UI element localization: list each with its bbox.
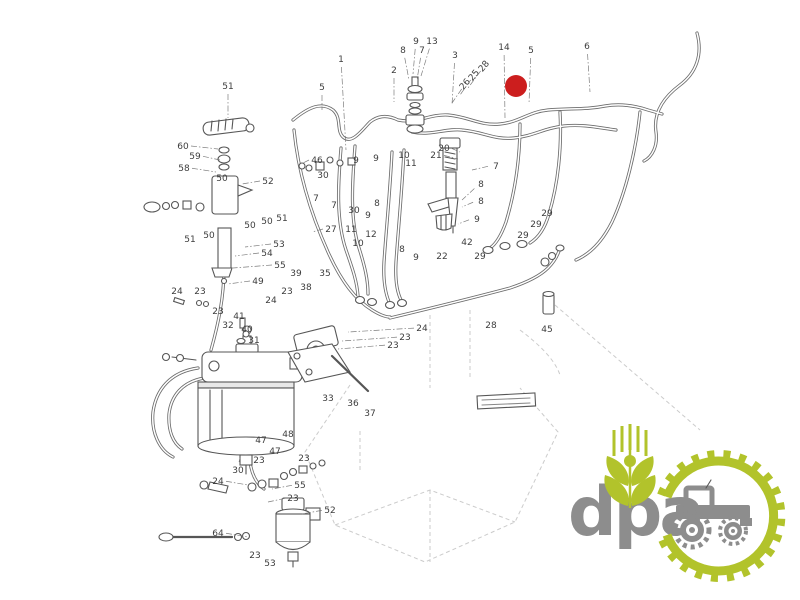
part-label-54: 54 xyxy=(261,249,273,259)
part-label-28: 28 xyxy=(485,321,497,331)
part-label-58: 58 xyxy=(178,164,190,174)
part-label-49: 49 xyxy=(252,277,264,287)
part-label-31: 31 xyxy=(248,336,259,346)
part-label-23: 23 xyxy=(287,494,298,504)
part-label-12: 12 xyxy=(365,230,376,240)
part-label-53: 53 xyxy=(264,559,275,569)
part-label-36: 36 xyxy=(347,399,359,409)
part-label-14: 14 xyxy=(498,43,510,53)
part-label-8: 8 xyxy=(478,197,484,207)
red-dot-marker xyxy=(505,75,527,97)
part-label-11: 11 xyxy=(345,225,356,235)
part-label-21: 21 xyxy=(430,151,441,161)
part-label-46: 46 xyxy=(311,156,323,166)
part-label-9: 9 xyxy=(413,253,419,263)
fuel-filter-assembly xyxy=(163,326,303,474)
part-label-42: 42 xyxy=(461,238,472,248)
part-label-24: 24 xyxy=(171,287,183,297)
part-label-47: 47 xyxy=(269,447,280,457)
part-label-6: 6 xyxy=(584,42,590,52)
part-label-24: 24 xyxy=(265,296,277,306)
part-label-29: 29 xyxy=(530,220,542,230)
part-label-50: 50 xyxy=(203,231,215,241)
part-label-23: 23 xyxy=(212,307,223,317)
part-label-5: 5 xyxy=(528,46,534,56)
part-label-50: 50 xyxy=(261,217,273,227)
part-label-30: 30 xyxy=(232,466,244,476)
part-label-27: 27 xyxy=(325,225,336,235)
part-label-55: 55 xyxy=(274,261,285,271)
part-label-8: 8 xyxy=(374,199,380,209)
part-label-3: 3 xyxy=(452,51,458,61)
part-label-24: 24 xyxy=(416,324,428,334)
parts-diagram: 5151289713326252814566059585052515050505… xyxy=(0,0,800,600)
part-label-30: 30 xyxy=(348,206,360,216)
part-label-8: 8 xyxy=(400,46,406,56)
engine-nameplate xyxy=(477,393,536,409)
part-label-50: 50 xyxy=(216,174,228,184)
part-label-51: 51 xyxy=(276,214,287,224)
part-label-9: 9 xyxy=(353,156,359,166)
filter-head-stack xyxy=(406,77,424,133)
part-label-39: 39 xyxy=(290,269,302,279)
part-label-37: 37 xyxy=(364,409,375,419)
part-label-48: 48 xyxy=(282,430,294,440)
part-label-8: 8 xyxy=(399,245,405,255)
part-label-23: 23 xyxy=(387,341,398,351)
part-label-38: 38 xyxy=(300,283,312,293)
part-label-45: 45 xyxy=(541,325,552,335)
part-label-41: 41 xyxy=(233,312,244,322)
part-label-53: 53 xyxy=(273,240,284,250)
part-label-59: 59 xyxy=(189,152,201,162)
part-label-32: 32 xyxy=(222,321,233,331)
part-label-52: 52 xyxy=(262,177,273,187)
parts-diagram-page: 5151289713326252814566059585052515050505… xyxy=(0,0,800,600)
part-label-52: 52 xyxy=(324,506,335,516)
part-label-51: 51 xyxy=(184,235,195,245)
part-label-9: 9 xyxy=(474,215,480,225)
part-label-47: 47 xyxy=(255,436,266,446)
part-label-51: 51 xyxy=(222,82,233,92)
part-label-7: 7 xyxy=(419,46,425,56)
part-label-2: 2 xyxy=(391,66,397,76)
hand-primer-pump xyxy=(144,117,254,283)
part-label-9: 9 xyxy=(373,154,379,164)
part-label-1: 1 xyxy=(338,55,344,65)
part-label-7: 7 xyxy=(493,162,499,172)
part-label-28: 28 xyxy=(477,59,492,74)
tractor-icon xyxy=(675,480,752,547)
part-label-60: 60 xyxy=(177,142,189,152)
part-label-10: 10 xyxy=(352,239,364,249)
part-label-23: 23 xyxy=(194,287,205,297)
sedimenter-assembly xyxy=(159,460,325,567)
part-label-23: 23 xyxy=(253,456,264,466)
part-label-13: 13 xyxy=(426,37,437,47)
part-label-23: 23 xyxy=(298,454,309,464)
wheat-emblem-icon xyxy=(604,424,655,508)
part-label-55: 55 xyxy=(294,481,305,491)
part-label-33: 33 xyxy=(322,394,333,404)
part-label-64: 64 xyxy=(212,529,224,539)
part-label-8: 8 xyxy=(478,180,484,190)
part-label-29: 29 xyxy=(474,252,486,262)
part-label-29: 29 xyxy=(517,231,529,241)
part-label-24: 24 xyxy=(212,477,224,487)
part-label-9: 9 xyxy=(365,211,371,221)
part-label-35: 35 xyxy=(319,269,330,279)
part-label-11: 11 xyxy=(405,159,416,169)
part-label-23: 23 xyxy=(399,333,410,343)
part-label-29: 29 xyxy=(541,209,553,219)
part-label-7: 7 xyxy=(331,201,337,211)
part-label-23: 23 xyxy=(249,551,260,561)
dpa-logo: dpa xyxy=(568,424,781,578)
part-label-22: 22 xyxy=(436,252,447,262)
part-label-23: 23 xyxy=(281,287,292,297)
part-label-5: 5 xyxy=(319,83,325,93)
part-label-50: 50 xyxy=(244,221,256,231)
part-label-30: 30 xyxy=(317,171,329,181)
part-label-7: 7 xyxy=(313,194,319,204)
part-label-40: 40 xyxy=(241,325,253,335)
